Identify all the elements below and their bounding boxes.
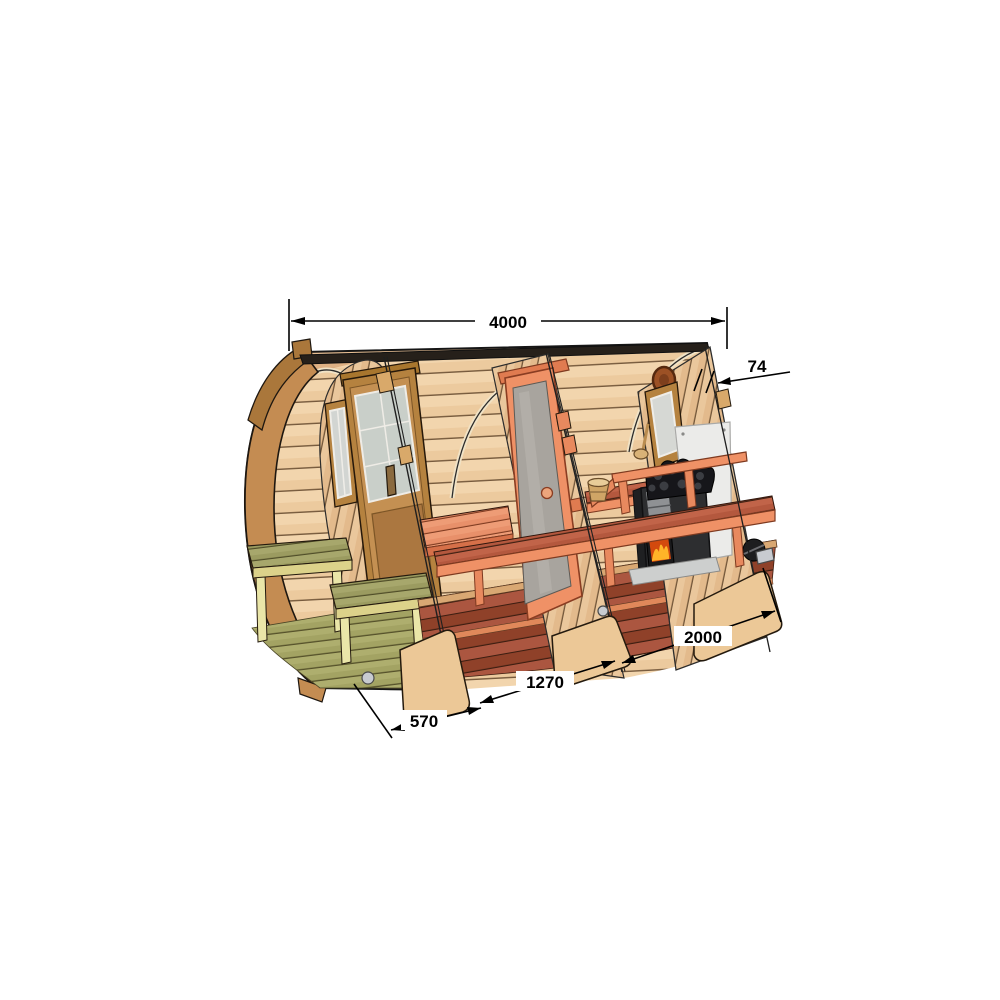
dim-porch-arrow-right: [467, 707, 481, 715]
dim-middle-label: 1270: [526, 673, 564, 692]
dim-rear-label: 2000: [684, 628, 722, 647]
hardware-hook-1: [362, 672, 374, 684]
rod-block-1b: [398, 445, 413, 465]
dim-wall-arrow: [718, 377, 731, 385]
entry-door-handle: [386, 465, 396, 496]
dim-porch-ext-left: [354, 684, 392, 738]
rod-block-2a: [556, 411, 571, 431]
bucket-rim: [588, 479, 609, 487]
drawing-canvas: 4000 74 2000 1270: [0, 0, 1000, 1000]
glass-door-knob: [542, 488, 553, 499]
porch-bench-lower-leg-a: [340, 615, 351, 664]
dim-overall-label: 4000: [489, 313, 527, 332]
round-vent-center: [659, 374, 669, 386]
dim-overall-arrow-left: [291, 317, 305, 325]
dim-middle-arrow-left: [480, 695, 494, 703]
dim-overall-arrow-right: [711, 317, 725, 325]
dim-porch-label: 570: [410, 712, 438, 731]
rod-block-3a: [716, 389, 731, 409]
glass-door-hinge-b: [570, 498, 582, 512]
bench-lower-leg-a: [474, 566, 484, 606]
porch-bench-upper-leg-a: [256, 574, 267, 642]
heat-shield-screw-a: [681, 432, 684, 435]
barrel-sauna-illustration: 4000 74 2000 1270: [0, 0, 1000, 1000]
dim-wall-label: 74: [748, 357, 767, 376]
ladle-cup: [634, 449, 648, 459]
water-bucket: [588, 479, 609, 502]
hardware-hook-3: [598, 606, 608, 616]
rod-block-2b: [562, 435, 577, 455]
